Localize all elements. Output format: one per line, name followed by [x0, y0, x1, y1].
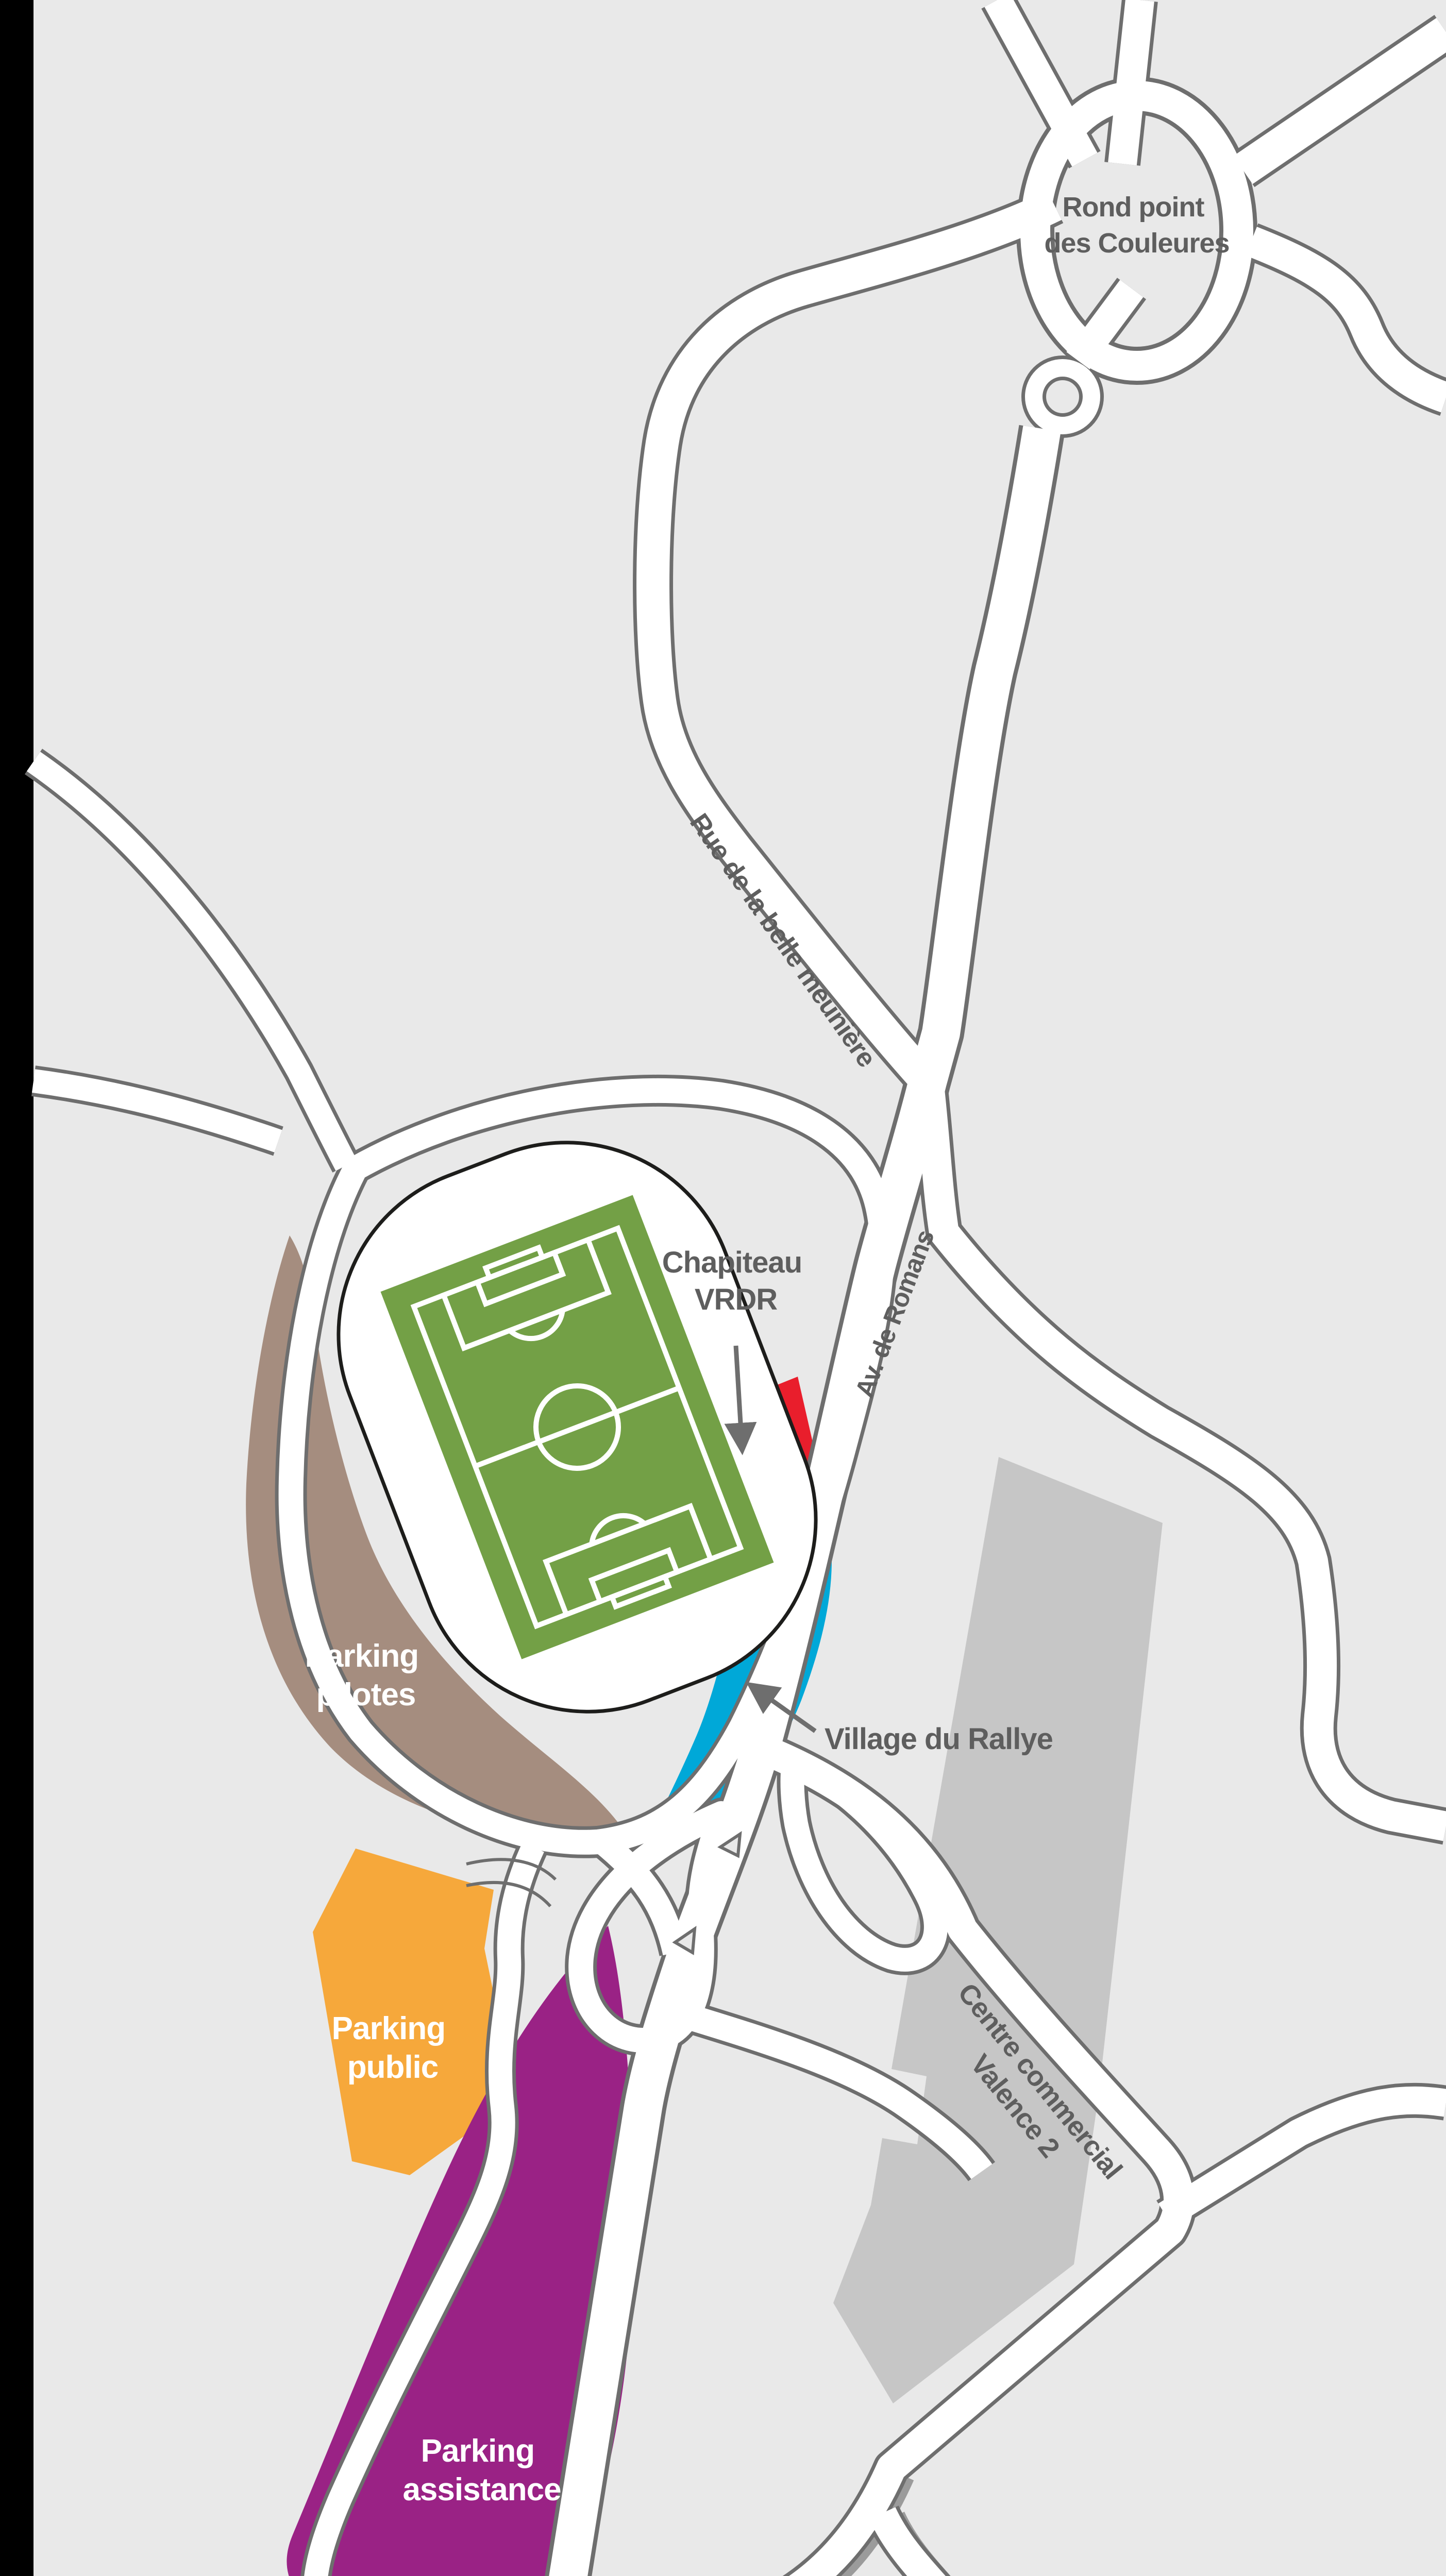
- village-du-rallye-label: Village du Rallye: [825, 1722, 1053, 1756]
- valence-access-map: Rond point des Couleures Rue de la belle…: [0, 0, 1446, 2576]
- access-map-page: Rond point des Couleures Rue de la belle…: [0, 0, 1446, 2576]
